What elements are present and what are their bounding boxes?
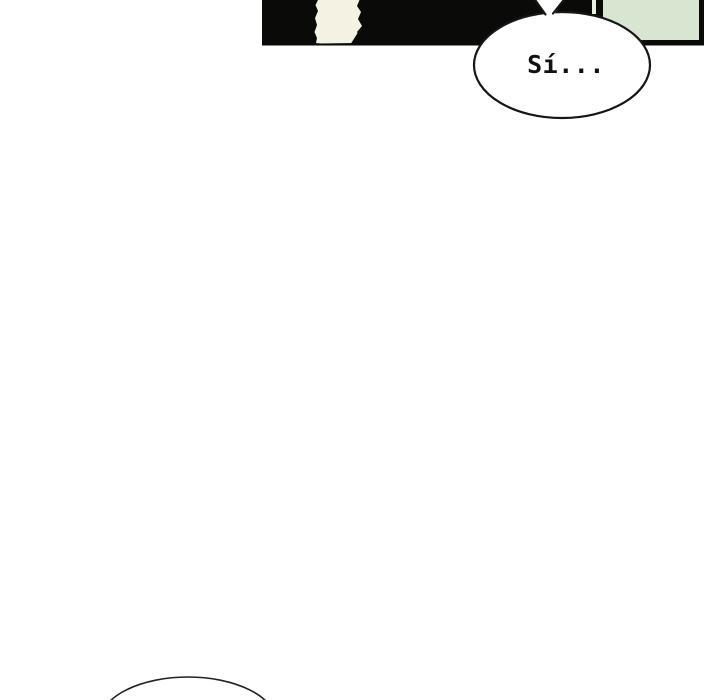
wall-edge-highlight bbox=[592, 0, 596, 14]
comic-art-canvas: Sí... bbox=[0, 0, 720, 700]
speech-bubble-bottom-partial bbox=[100, 677, 276, 700]
speech-bubble-text: Sí... bbox=[527, 50, 605, 79]
webtoon-page: Sí... bbox=[0, 0, 720, 700]
wall-edge-bar bbox=[596, 0, 603, 16]
panel-light-stripe bbox=[315, 0, 363, 44]
